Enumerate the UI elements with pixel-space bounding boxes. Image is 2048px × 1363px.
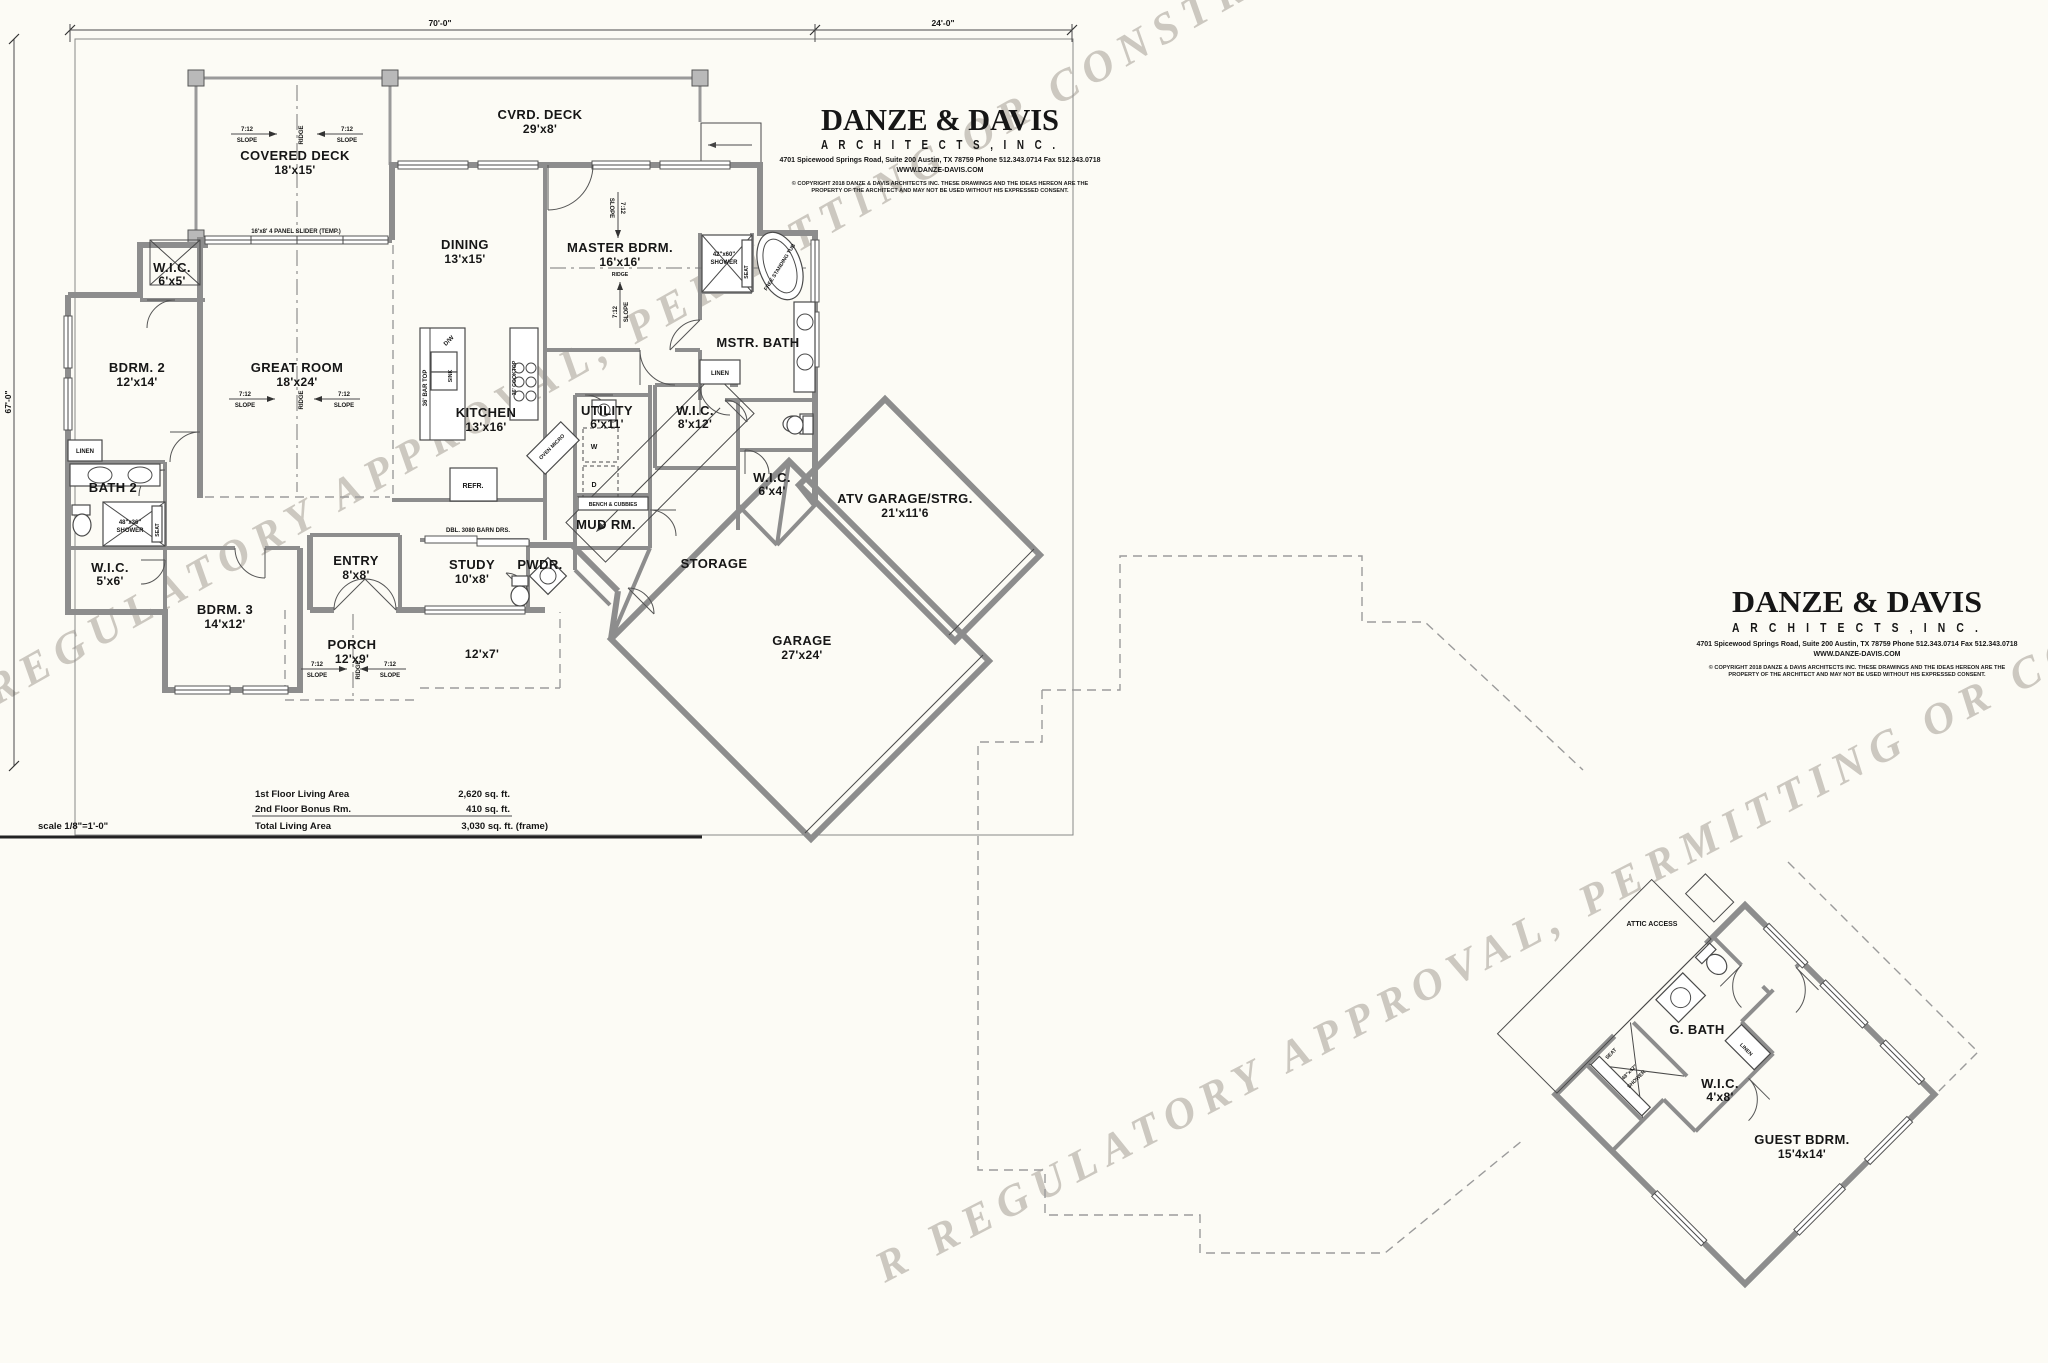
svg-text:W.I.C.: W.I.C. — [153, 260, 191, 275]
room-label: G. BATH — [1669, 1022, 1724, 1037]
svg-text:18'x15': 18'x15' — [274, 163, 315, 177]
svg-text:MSTR. BATH: MSTR. BATH — [716, 335, 799, 350]
firm-address: 4701 Spicewood Springs Road, Suite 200 A… — [779, 157, 1100, 164]
room-label: GUEST BDRM. — [1754, 1132, 1849, 1147]
svg-text:5'x6': 5'x6' — [96, 574, 123, 588]
svg-text:2,620 sq. ft.: 2,620 sq. ft. — [458, 789, 510, 800]
svg-text:STORAGE: STORAGE — [681, 556, 748, 571]
watermark-line-2: R REGULATORY APPROVAL, PERMITTING OR CON… — [866, 450, 2048, 1292]
svg-text:16'x16': 16'x16' — [599, 255, 640, 269]
slider-note: 16'x8' 4 PANEL SLIDER (TEMP.) — [251, 229, 341, 235]
firm-address: 4701 Spicewood Springs Road, Suite 200 A… — [1696, 641, 2017, 648]
svg-text:7:12: 7:12 — [619, 202, 625, 215]
window — [1763, 923, 1808, 968]
svg-text:PORCH: PORCH — [328, 637, 377, 652]
svg-text:14'x12': 14'x12' — [204, 617, 245, 631]
svg-text:DINING: DINING — [441, 237, 489, 252]
svg-text:2nd Floor Bonus Rm.: 2nd Floor Bonus Rm. — [255, 804, 351, 815]
room-label: W.I.C. — [1701, 1076, 1739, 1091]
watermark-line-1: R REGULATORY APPROVAL, PERMITTING OR CON… — [0, 0, 1499, 744]
dim-24ft: 24'-0" — [931, 18, 954, 28]
room-dim: 15'4x14' — [1778, 1147, 1826, 1161]
svg-text:12'x9': 12'x9' — [335, 652, 369, 666]
window — [1820, 980, 1868, 1028]
svg-text:SLOPE: SLOPE — [337, 138, 357, 144]
svg-text:7:12: 7:12 — [239, 392, 252, 398]
svg-text:ENTRY: ENTRY — [333, 553, 379, 568]
window — [811, 240, 819, 302]
svg-text:6'x4': 6'x4' — [758, 484, 785, 498]
window — [425, 606, 525, 614]
svg-text:Total Living Area: Total Living Area — [255, 821, 332, 832]
svg-text:7:12: 7:12 — [384, 662, 397, 668]
svg-text:COVERED DECK: COVERED DECK — [240, 148, 350, 163]
firm-copyright-1: © COPYRIGHT 2018 DANZE & DAVIS ARCHITECT… — [1709, 664, 2006, 671]
svg-text:SLOPE: SLOPE — [608, 198, 614, 218]
window — [175, 686, 230, 694]
window — [1794, 1184, 1846, 1236]
dryer-label: D — [591, 482, 596, 489]
shower-size: 48"x36" — [119, 520, 142, 526]
svg-text:7:12: 7:12 — [338, 392, 351, 398]
svg-text:8'x12': 8'x12' — [678, 417, 712, 431]
seat-label: SEAT — [1604, 1047, 1618, 1061]
dim-left: 67'-0" — [3, 390, 13, 413]
room-dim: 4'x8' — [1706, 1090, 1733, 1104]
svg-text:KITCHEN: KITCHEN — [456, 405, 517, 420]
atv-garage-walls — [799, 399, 1040, 641]
washer-label: W — [591, 444, 598, 451]
firm-copyright-1: © COPYRIGHT 2018 DANZE & DAVIS ARCHITECT… — [792, 180, 1089, 187]
svg-text:SLOPE: SLOPE — [235, 403, 255, 409]
svg-text:6'x11': 6'x11' — [590, 417, 624, 431]
firm-logo-block-1: DANZE & DAVIS A R C H I T E C T S , I N … — [779, 102, 1100, 194]
shower-word: SHOWER — [711, 260, 739, 266]
slope-arrow: 7:12SLOPE — [608, 192, 625, 238]
shower-word: SHOWER — [117, 528, 145, 534]
svg-text:CVRD. DECK: CVRD. DECK — [498, 107, 583, 122]
window — [478, 161, 538, 169]
slope-arrow: 7:12SLOPE — [314, 392, 360, 409]
window — [592, 161, 650, 169]
svg-text:SLOPE: SLOPE — [624, 302, 630, 322]
svg-text:W.I.C.: W.I.C. — [676, 403, 714, 418]
area-table: scale 1/8"=1'-0" 1st Floor Living Area 2… — [38, 789, 548, 832]
barn-door-note: DBL. 3080 BARN DRS. — [446, 528, 510, 534]
svg-text:SLOPE: SLOPE — [334, 403, 354, 409]
window — [660, 161, 730, 169]
svg-text:8'x8': 8'x8' — [342, 568, 369, 582]
window — [64, 316, 72, 368]
svg-text:18'x24': 18'x24' — [276, 375, 317, 389]
firm-logo-block-2: DANZE & DAVIS A R C H I T E C T S , I N … — [1696, 584, 2017, 678]
svg-text:13'x16': 13'x16' — [465, 420, 506, 434]
svg-text:SLOPE: SLOPE — [380, 673, 400, 679]
svg-text:1st Floor Living Area: 1st Floor Living Area — [255, 789, 350, 800]
firm-name: DANZE & DAVIS — [1732, 584, 1982, 619]
attic-access-label: ATTIC ACCESS — [1627, 921, 1678, 928]
svg-text:410 sq. ft.: 410 sq. ft. — [466, 804, 510, 815]
window — [398, 161, 468, 169]
svg-text:6'x5': 6'x5' — [158, 274, 185, 288]
firm-copyright-2: PROPERTY OF THE ARCHITECT AND MAY NOT BE… — [811, 188, 1069, 194]
svg-text:GREAT ROOM: GREAT ROOM — [251, 360, 344, 375]
svg-text:W.I.C.: W.I.C. — [91, 560, 129, 575]
svg-text:29'x8': 29'x8' — [523, 122, 557, 136]
ridge-label: RIDGE — [299, 125, 305, 144]
svg-text:27'x24': 27'x24' — [781, 648, 822, 662]
svg-text:SLOPE: SLOPE — [237, 138, 257, 144]
slope-arrow: 7:12SLOPE — [231, 127, 277, 144]
svg-text:GARAGE: GARAGE — [772, 633, 831, 648]
bench-label: BENCH & CUBBIES — [589, 502, 638, 508]
window — [1652, 1191, 1707, 1246]
window — [64, 378, 72, 430]
svg-text:7:12: 7:12 — [613, 305, 619, 318]
slope-arrow: 7:12SLOPE — [229, 392, 275, 409]
refr-label: REFR. — [463, 483, 484, 490]
patio-slider — [205, 236, 388, 244]
svg-text:BDRM. 3: BDRM. 3 — [197, 602, 253, 617]
wc-toilet — [787, 416, 813, 434]
svg-text:3,030 sq. ft. (frame): 3,030 sq. ft. (frame) — [461, 821, 548, 832]
firm-type: A R C H I T E C T S , I N C . — [1732, 621, 1982, 635]
svg-text:BDRM. 2: BDRM. 2 — [109, 360, 165, 375]
svg-text:PWDR.: PWDR. — [517, 557, 562, 572]
seat-label: SEAT — [155, 522, 161, 536]
linen-label: LINEN — [711, 371, 729, 377]
window — [243, 686, 288, 694]
svg-text:MUD RM.: MUD RM. — [576, 517, 636, 532]
floorplan-sheet: R REGULATORY APPROVAL, PERMITTING OR CON… — [0, 0, 2048, 1363]
scale-note: scale 1/8"=1'-0" — [38, 821, 108, 832]
svg-text:SLOPE: SLOPE — [307, 673, 327, 679]
svg-text:MASTER BDRM.: MASTER BDRM. — [567, 240, 673, 255]
window — [1880, 1040, 1925, 1085]
firm-website: WWW.DANZE-DAVIS.COM — [1814, 651, 1901, 658]
bartop-label: 36' BAR TOP — [423, 370, 429, 407]
deck-stairs — [701, 123, 761, 167]
svg-text:7:12: 7:12 — [341, 127, 354, 133]
bath2-toilet — [72, 505, 91, 536]
floorplan-drawing: R REGULATORY APPROVAL, PERMITTING OR CON… — [0, 0, 2048, 1363]
svg-text:7:12: 7:12 — [241, 127, 254, 133]
svg-text:12'x14': 12'x14' — [116, 375, 157, 389]
slope-arrow: 7:12SLOPE — [317, 127, 363, 144]
svg-text:10'x8': 10'x8' — [455, 572, 489, 586]
svg-text:STUDY: STUDY — [449, 557, 495, 572]
firm-website: WWW.DANZE-DAVIS.COM — [897, 167, 984, 174]
firm-copyright-2: PROPERTY OF THE ARCHITECT AND MAY NOT BE… — [1728, 672, 1986, 678]
svg-text:13'x15': 13'x15' — [444, 252, 485, 266]
barn-doors — [425, 536, 529, 546]
svg-text:12'x7': 12'x7' — [465, 647, 499, 661]
sink-label: SINK — [448, 370, 454, 383]
svg-text:UTILITY: UTILITY — [581, 403, 633, 418]
cooktop-label: 36' COOKTOP — [512, 360, 518, 395]
seat-label: SEAT — [744, 264, 750, 278]
window — [1865, 1116, 1913, 1164]
shower-size: 42"x60" — [713, 252, 736, 258]
svg-text:BATH 2: BATH 2 — [89, 480, 137, 495]
dim-70ft: 70'-0" — [428, 18, 451, 28]
svg-text:21'x11'6: 21'x11'6 — [881, 506, 929, 520]
svg-text:7:12: 7:12 — [311, 662, 324, 668]
linen-label: LINEN — [76, 449, 94, 455]
guest-vanity — [1656, 973, 1705, 1022]
svg-text:ATV GARAGE/STRG.: ATV GARAGE/STRG. — [837, 491, 972, 506]
ridge-label: RIDGE — [299, 390, 305, 409]
svg-text:W.I.C.: W.I.C. — [753, 470, 791, 485]
firm-type: A R C H I T E C T S , I N C . — [821, 138, 1059, 152]
firm-name: DANZE & DAVIS — [821, 102, 1059, 137]
ridge-label: RIDGE — [612, 272, 629, 278]
